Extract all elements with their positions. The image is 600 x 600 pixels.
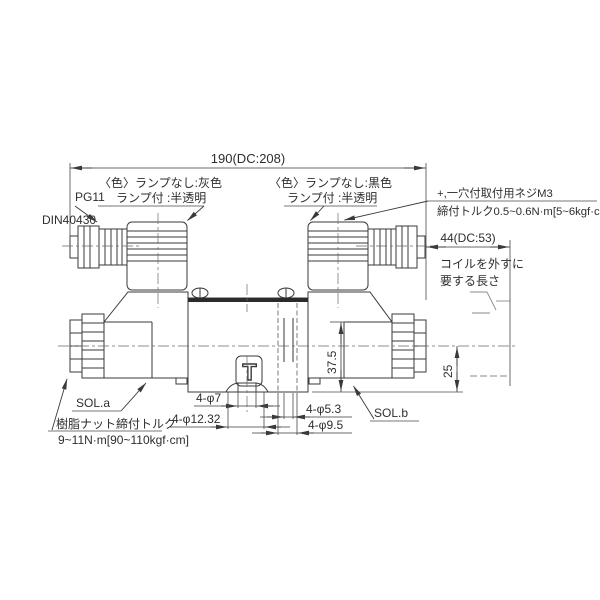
body-top-band xyxy=(188,298,308,302)
coil-note-line1: コイルを外すに xyxy=(440,257,524,271)
valve-outline-drawing: T 190(DC:208) 44(DC:53) xyxy=(0,0,600,600)
din-connector-a xyxy=(127,222,187,290)
callout-pg11: PG11 DIN40430 xyxy=(42,190,105,227)
callout-nut-torque: 樹脂ナット締付トルク 9~11N·m[90~110kgf·cm] xyxy=(48,379,189,447)
sol-b-label: SOL.b xyxy=(374,406,408,420)
dim-phi1232-text: 4-φ12.32 xyxy=(172,412,221,426)
t-mark: T xyxy=(242,359,256,385)
callout-sol-b: SOL.b xyxy=(354,386,420,421)
m3-line2: 締付トルク0.5~0.6N·m[5~6kgf·cm] xyxy=(437,204,600,218)
phantom-coil-outline xyxy=(470,292,510,376)
color-b-line2: ランプ付 :半透明 xyxy=(287,191,377,205)
dim-phi53-text: 4-φ5.3 xyxy=(306,402,341,416)
valve-body: T xyxy=(176,288,320,392)
gland-a xyxy=(70,226,127,268)
dim-25-text: 25 xyxy=(441,364,455,378)
dim-coil-removal-text: 44(DC:53) xyxy=(440,231,495,245)
solenoid-a xyxy=(70,292,188,378)
callout-m3-screw: +,一穴付取付用ネジM3 締付トルク0.5~0.6N·m[5~6kgf·cm] xyxy=(345,186,600,220)
drawing-canvas: T 190(DC:208) 44(DC:53) xyxy=(0,0,600,600)
m3-line1: +,一穴付取付用ネジM3 xyxy=(437,186,553,200)
pg11-label: PG11 xyxy=(75,190,105,204)
dim-phi95-text: 4-φ9.5 xyxy=(308,418,343,432)
color-b-line1: 〈色〉ランプなし:黒色 xyxy=(269,176,392,190)
dim-phi7-text: 4-φ7 xyxy=(196,391,221,405)
color-a-line1: 〈色〉ランプなし:灰色 xyxy=(99,176,222,190)
dim-phi1232: 4-φ12.32 xyxy=(170,392,290,429)
nut-torque-line1: 樹脂ナット締付トルク xyxy=(56,416,176,431)
dim-overall-width: 190(DC:208) xyxy=(70,151,426,300)
dim-375-text: 37.5 xyxy=(325,350,339,374)
nut-torque-line2: 9~11N·m[90~110kgf·cm] xyxy=(58,433,189,447)
callout-color-a: 〈色〉ランプなし:灰色 ランプ付 :半透明 xyxy=(98,176,222,221)
sol-a-label: SOL.a xyxy=(76,396,110,410)
dim-coil-removal: 44(DC:53) コイルを外すに 要する長さ xyxy=(426,231,524,386)
color-a-line2: ランプ付 :半透明 xyxy=(116,191,206,205)
dim-width-text: 190(DC:208) xyxy=(211,151,285,166)
callout-sol-a: SOL.a xyxy=(72,383,146,411)
gland-b xyxy=(368,226,425,268)
coil-note-line2: 要する長さ xyxy=(440,274,500,288)
